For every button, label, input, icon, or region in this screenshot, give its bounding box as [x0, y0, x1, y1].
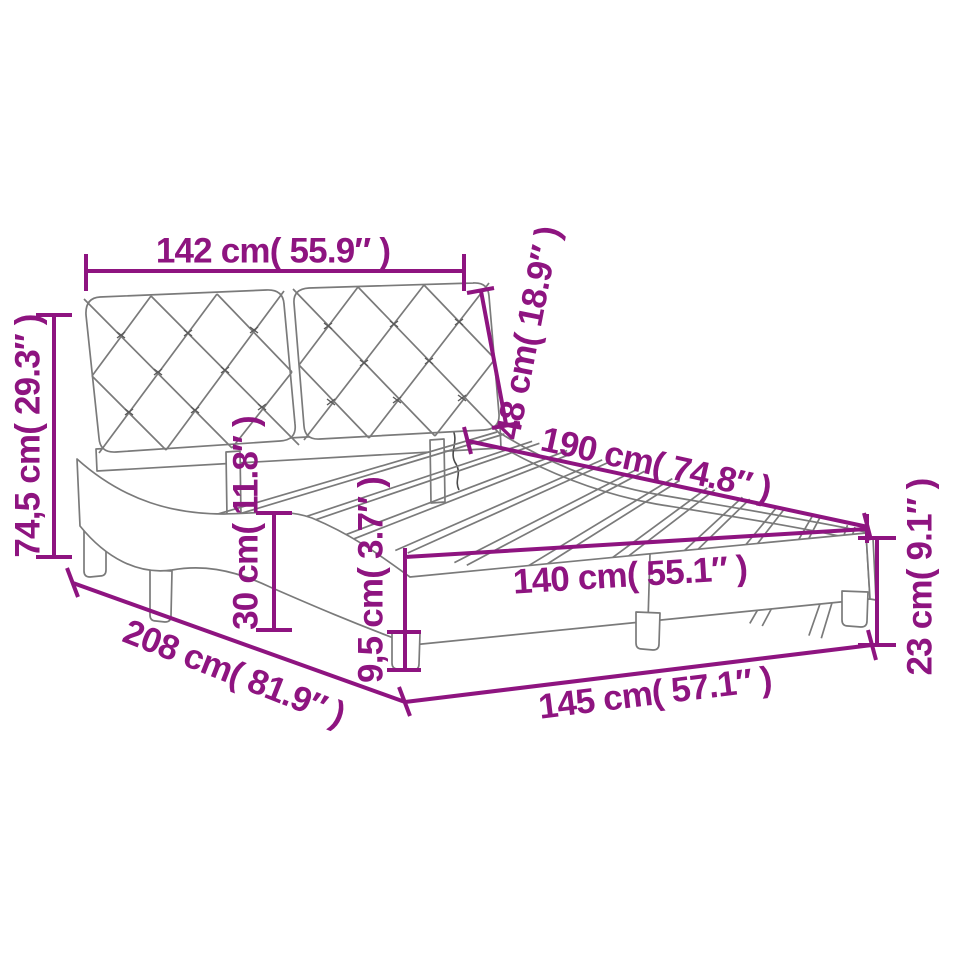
bed-dimension-diagram: 142 cm( 55.9″ ) 48 cm( 18.9″ ) 74,5 cm( … [0, 0, 955, 955]
dim-label-total-height: 74,5 cm( 29.3″ ) [9, 314, 48, 557]
dim-label-rail-height: 30 cm( 11.8″ ) [227, 416, 266, 630]
bed-leg-foot [842, 591, 868, 627]
bed-leg-mid-right [636, 612, 660, 650]
dim-label-total-width: 145 cm( 57.1″ ) [536, 659, 773, 726]
dim-label-leg-height: 9,5 cm( 3.7″ ) [352, 477, 391, 683]
dim-label-headboard-height: 48 cm( 18.9″ ) [488, 223, 567, 442]
dim-total-height: 74,5 cm( 29.3″ ) [9, 314, 73, 557]
dim-label-base-height: 23 cm( 9.1″ ) [901, 478, 940, 675]
dim-label-headboard-width: 142 cm( 55.9″ ) [156, 232, 390, 271]
dim-headboard-width: 142 cm( 55.9″ ) [86, 232, 464, 292]
dimension-diagram-page: 142 cm( 55.9″ ) 48 cm( 18.9″ ) 74,5 cm( … [0, 0, 955, 955]
headboard-right-cushion [294, 283, 499, 439]
